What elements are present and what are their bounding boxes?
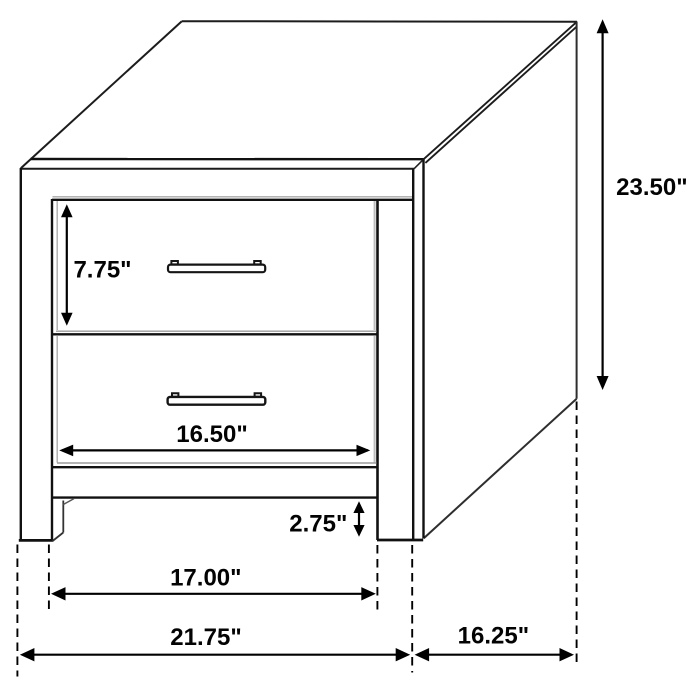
svg-text:21.75": 21.75" xyxy=(170,624,241,651)
svg-text:16.25": 16.25" xyxy=(458,622,529,649)
svg-text:16.50": 16.50" xyxy=(176,421,247,448)
svg-text:2.75": 2.75" xyxy=(289,511,347,538)
svg-text:23.50": 23.50" xyxy=(616,174,687,201)
svg-text:17.00": 17.00" xyxy=(170,564,241,591)
svg-text:7.75": 7.75" xyxy=(73,257,131,284)
